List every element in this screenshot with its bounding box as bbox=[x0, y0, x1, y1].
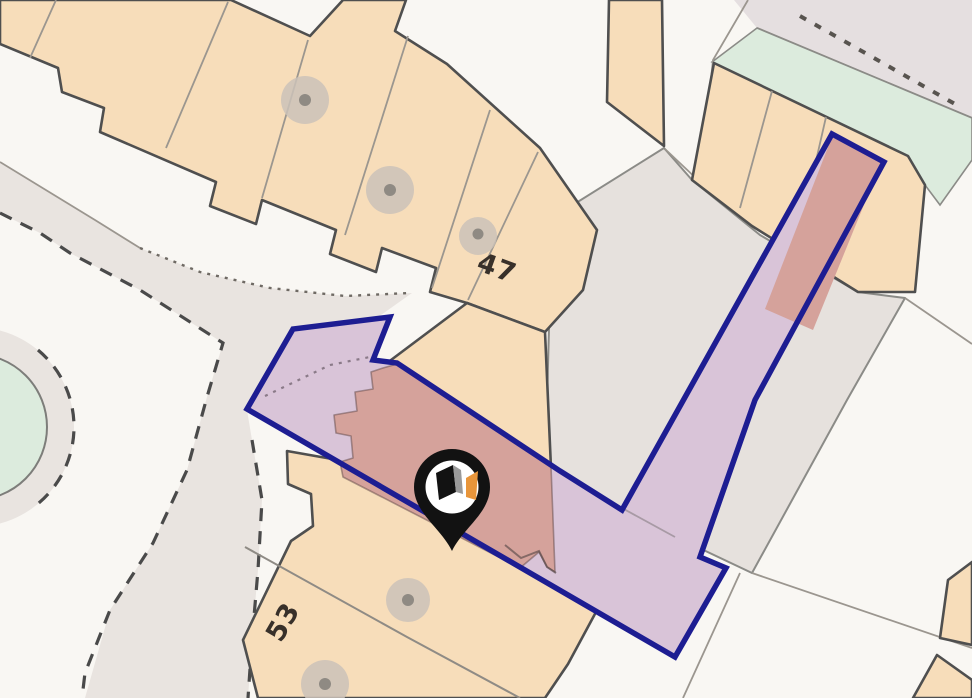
tree-icon bbox=[386, 578, 430, 622]
map-svg: 47 53 bbox=[0, 0, 972, 698]
property-map-canvas[interactable]: 47 53 bbox=[0, 0, 972, 698]
building-southeast-1 bbox=[940, 562, 972, 645]
tree-icon bbox=[281, 76, 329, 124]
building-southeast-2 bbox=[913, 655, 972, 698]
tree-icon bbox=[366, 166, 414, 214]
building-column-north bbox=[607, 0, 664, 146]
green-circle-verge bbox=[0, 327, 74, 527]
